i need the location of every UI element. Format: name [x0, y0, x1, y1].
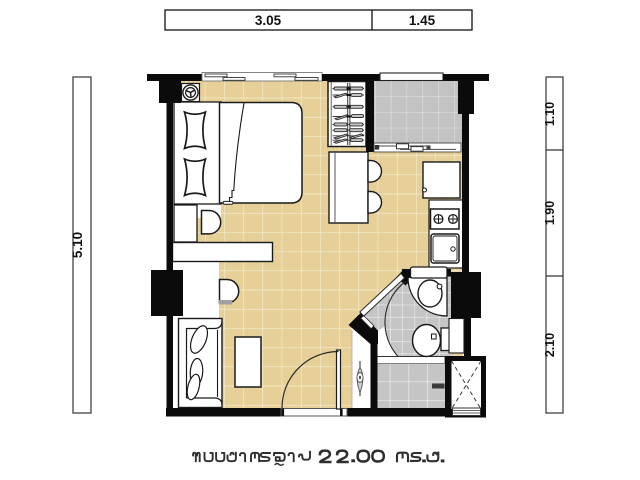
- svg-text:5.10: 5.10: [70, 232, 85, 258]
- svg-text:3.05: 3.05: [255, 13, 282, 28]
- svg-text:1.45: 1.45: [409, 13, 436, 28]
- svg-text:2.10: 2.10: [543, 333, 557, 357]
- svg-text:1.10: 1.10: [543, 102, 557, 126]
- svg-text:1.90: 1.90: [543, 201, 557, 225]
